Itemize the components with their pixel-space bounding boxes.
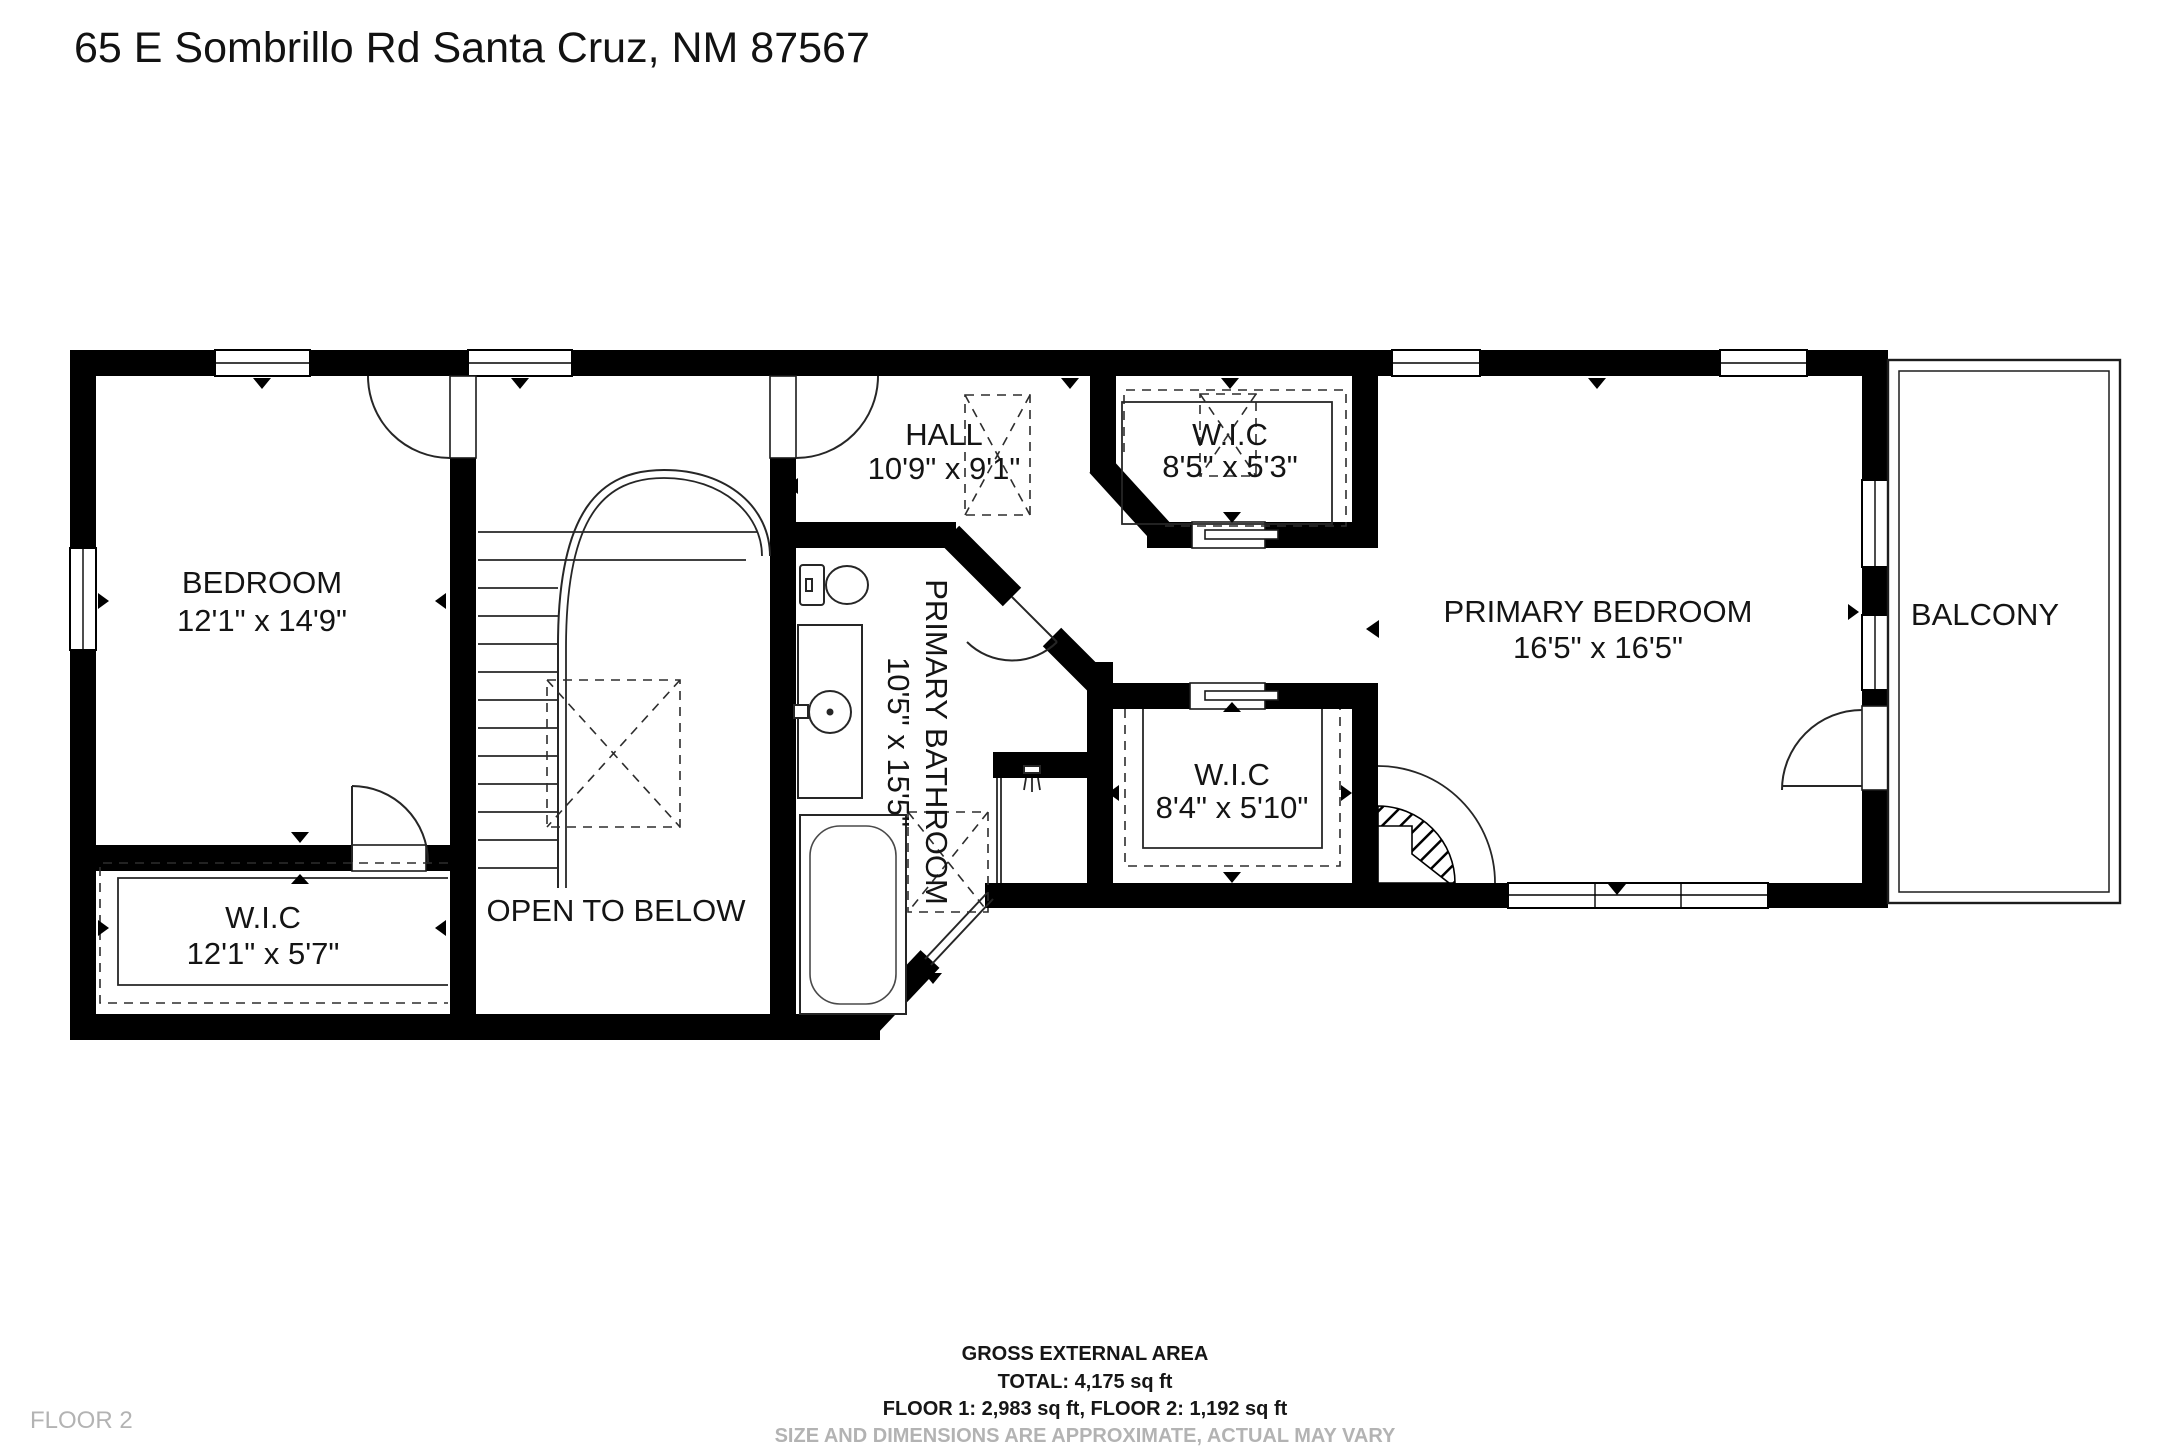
window	[1508, 883, 1768, 908]
floor-label: FLOOR 2	[30, 1407, 133, 1434]
footer: GROSS EXTERNAL AREA TOTAL: 4,175 sq ft F…	[30, 1343, 1396, 1447]
footer-total-area: TOTAL: 4,175 sq ft	[998, 1371, 1173, 1393]
footer-floor-areas: FLOOR 1: 2,983 sq ft, FLOOR 2: 1,192 sq …	[883, 1398, 1288, 1420]
shower	[997, 766, 1040, 883]
room-dims-wic-middle: 8'4" x 5'10"	[1156, 790, 1309, 825]
window	[215, 350, 310, 376]
open-to-below-marker	[547, 680, 680, 827]
toilet	[800, 565, 868, 605]
door-balcony	[1862, 706, 1888, 790]
room-label-bedroom: BEDROOM	[182, 565, 342, 600]
door-bathroom	[1012, 597, 1057, 642]
window	[1862, 615, 1888, 690]
room-dims-primary-bathroom: 10'5" x 15'5"	[881, 657, 916, 827]
floor-plan-page: 65 E Sombrillo Rd Santa Cruz, NM 87567	[0, 0, 2173, 1448]
floor-plan-canvas: 65 E Sombrillo Rd Santa Cruz, NM 87567	[0, 0, 2173, 1448]
room-label-wic-top: W.I.C	[1192, 417, 1268, 452]
door-hall	[770, 376, 796, 458]
window	[70, 548, 96, 650]
footer-disclaimer: SIZE AND DIMENSIONS ARE APPROXIMATE, ACT…	[775, 1425, 1396, 1447]
room-dims-wic-top: 8'5" x 5'3"	[1162, 449, 1298, 484]
staircase	[478, 470, 770, 888]
window	[1862, 480, 1888, 567]
room-label-wic-lower: W.I.C	[225, 900, 301, 935]
vanity-sink	[794, 625, 862, 798]
window	[1720, 350, 1807, 376]
room-label-hall: HALL	[905, 417, 983, 452]
room-label-primary-bedroom: PRIMARY BEDROOM	[1444, 594, 1753, 629]
page-title: 65 E Sombrillo Rd Santa Cruz, NM 87567	[74, 24, 870, 72]
room-label-open-to-below: OPEN TO BELOW	[487, 893, 747, 928]
room-label-primary-bathroom: PRIMARY BATHROOM	[919, 579, 954, 905]
window	[468, 350, 572, 376]
room-dims-wic-lower: 12'1" x 5'7"	[187, 936, 340, 971]
room-dims-bedroom: 12'1" x 14'9"	[177, 603, 347, 638]
room-label-wic-middle: W.I.C	[1194, 757, 1270, 792]
bathtub	[800, 815, 906, 1014]
window	[1392, 350, 1480, 376]
kiva-fireplace	[1378, 766, 1495, 883]
footer-gross-area-heading: GROSS EXTERNAL AREA	[962, 1343, 1209, 1365]
room-dims-hall: 10'9" x 9'1"	[868, 451, 1021, 486]
room-dims-primary-bedroom: 16'5" x 16'5"	[1513, 630, 1683, 665]
room-label-balcony: BALCONY	[1911, 597, 2059, 632]
door-wic-lower	[352, 845, 426, 871]
door-bedroom	[450, 376, 476, 458]
